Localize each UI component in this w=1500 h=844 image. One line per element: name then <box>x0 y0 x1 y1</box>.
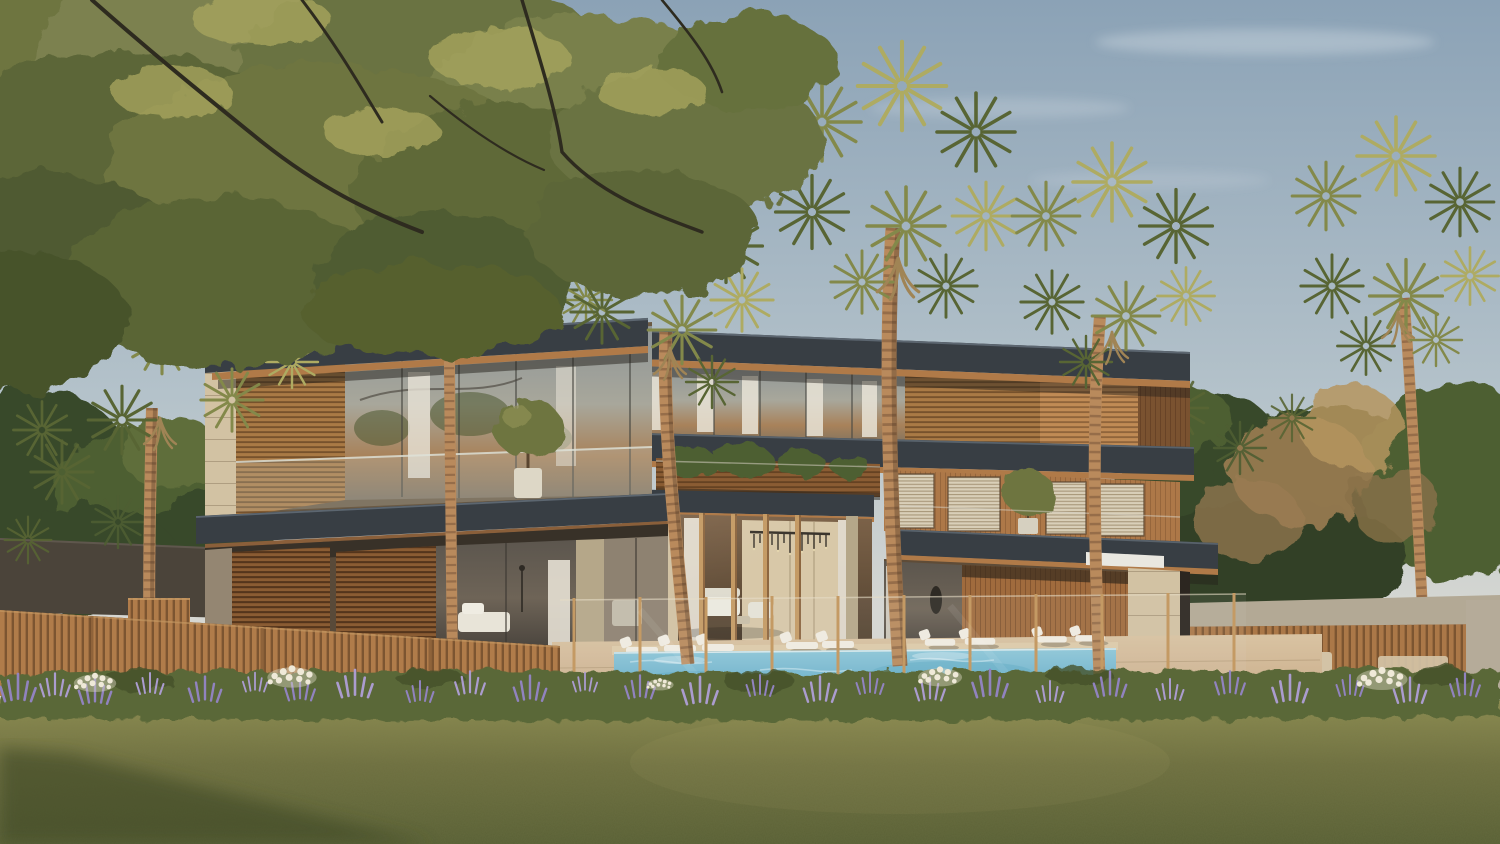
palm-trunk-leftwing <box>449 318 453 692</box>
flower-bed <box>0 665 1500 721</box>
villa-rendering <box>0 0 1500 844</box>
rendering-canvas <box>0 0 1500 844</box>
lawn <box>0 700 1500 844</box>
